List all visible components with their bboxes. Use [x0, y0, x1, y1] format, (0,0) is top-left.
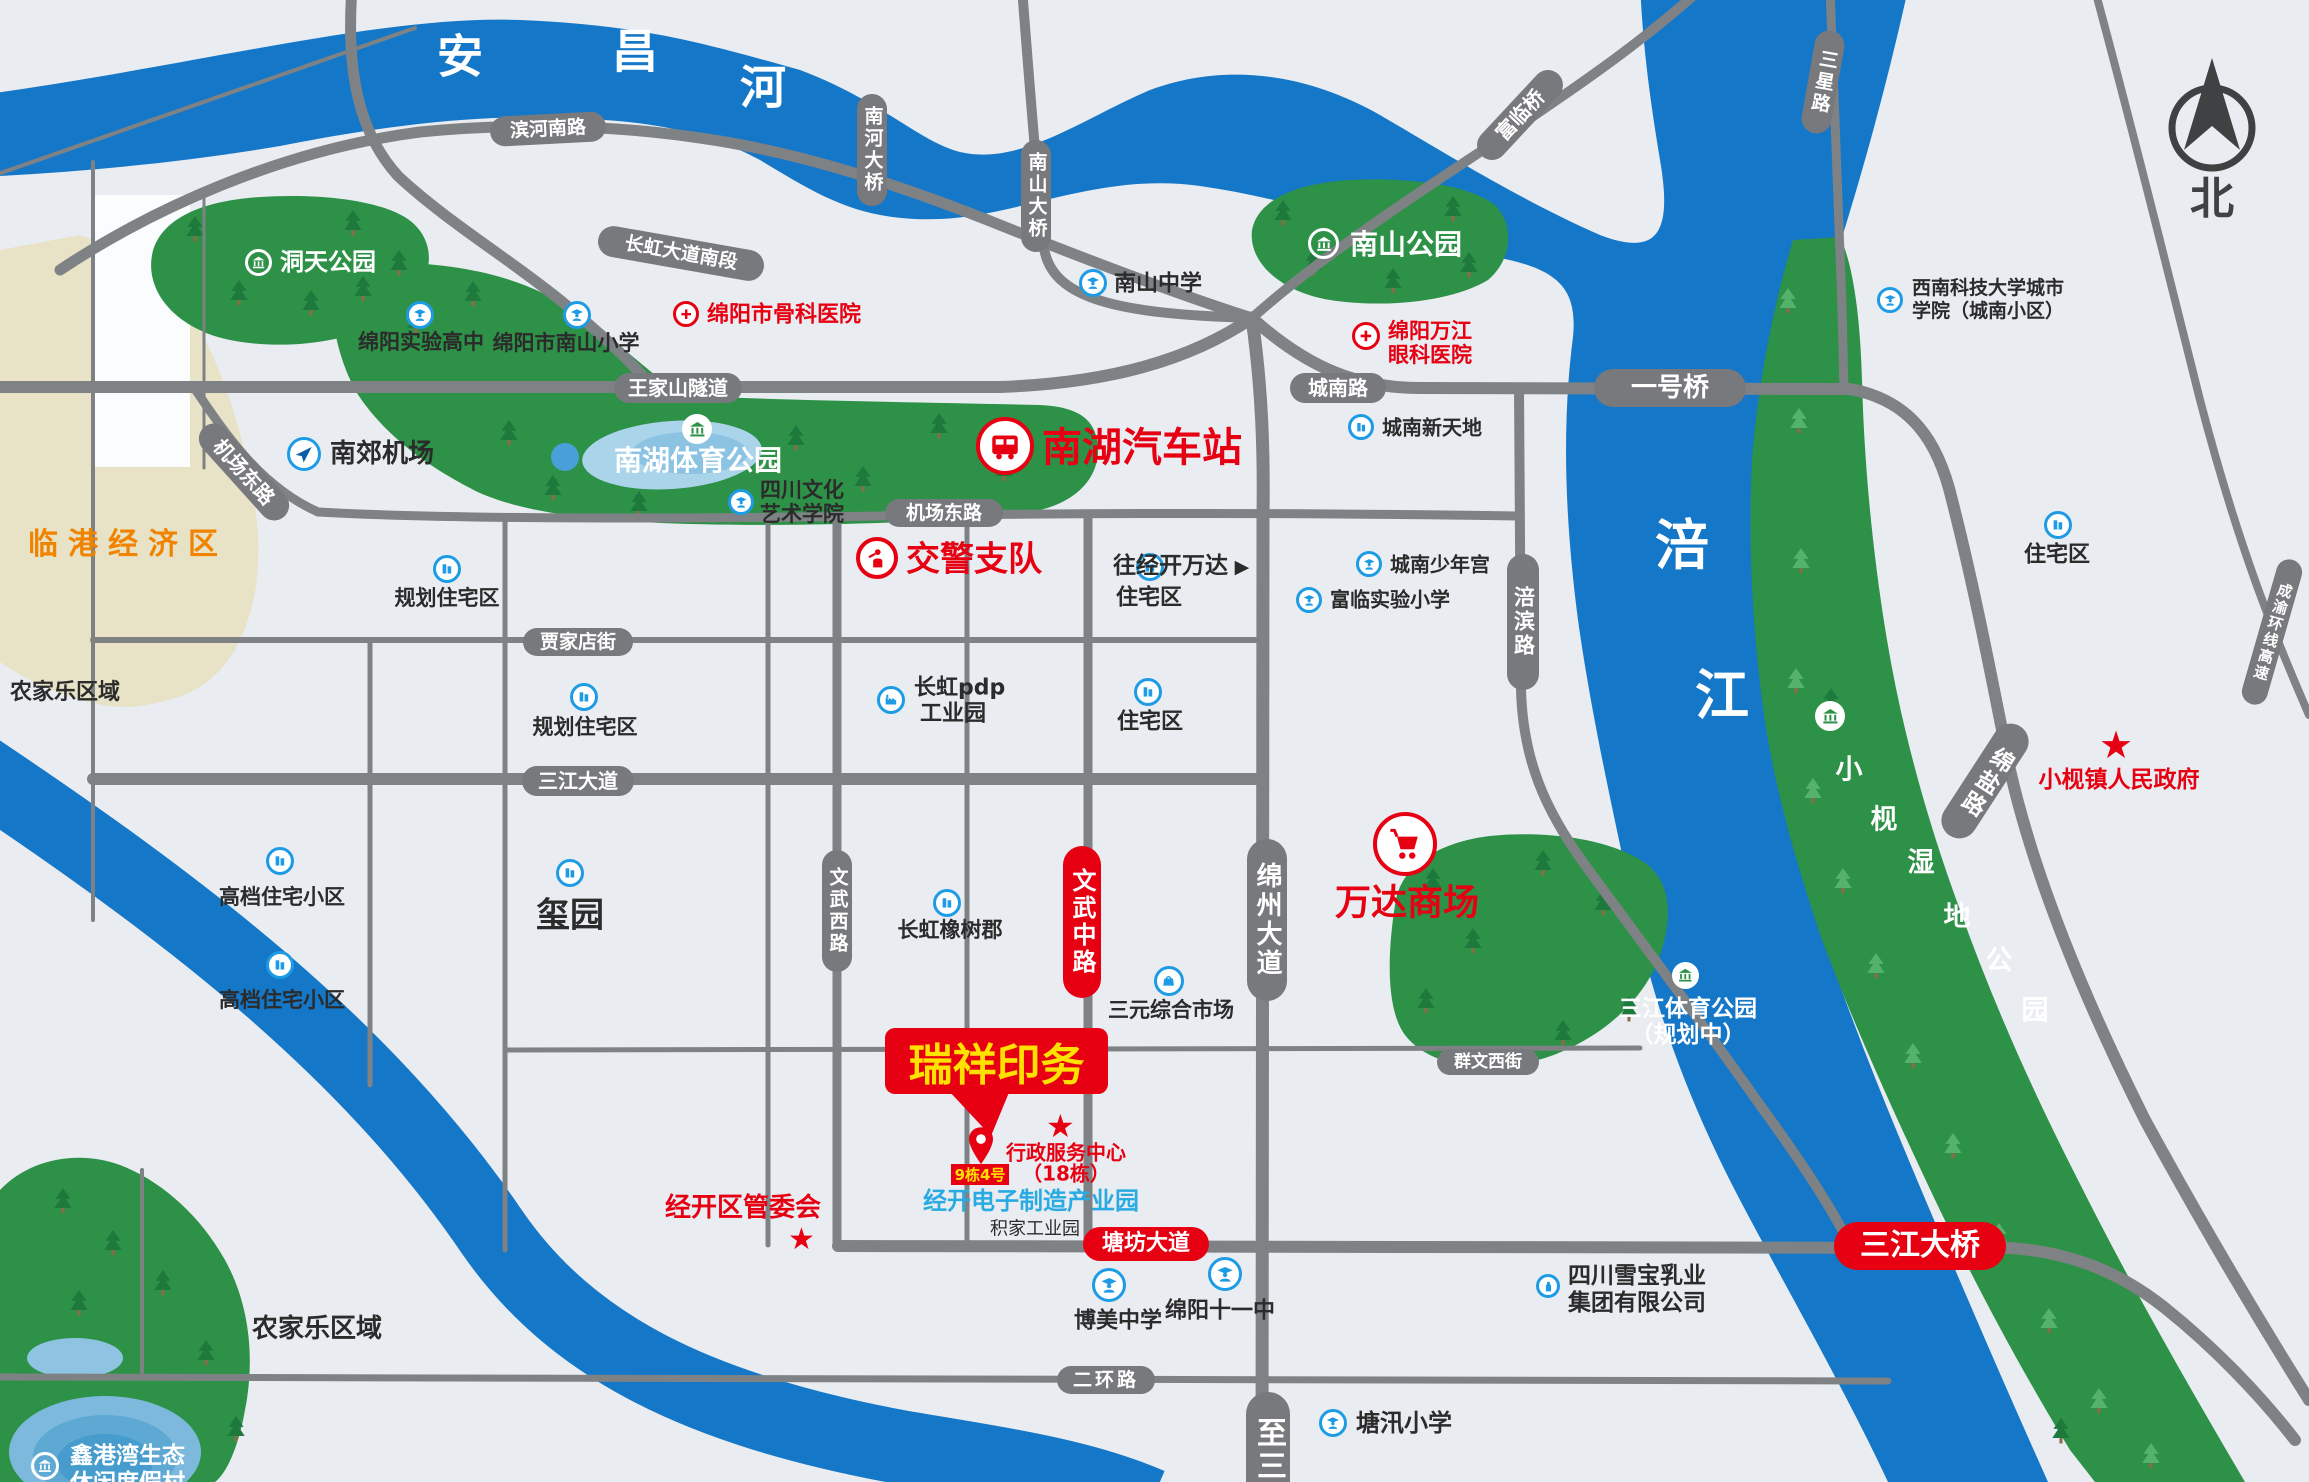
nanjiao-airport-label: 南郊机场 — [330, 440, 434, 470]
tangxun-xiaoxue-icon — [1319, 1409, 1347, 1437]
gaodang-xiaoqu-1-icon — [266, 847, 294, 875]
anchang-river-char-3: 河 — [740, 62, 786, 115]
guihua-zhuzhai-1-label: 规划住宅区 — [395, 586, 500, 610]
gaodang-xiaoqu-1-label: 高档住宅小区 — [219, 885, 345, 909]
xiaojian-wetland-park-icon — [1815, 701, 1845, 731]
shiyan-gaozhong-label: 绵阳实验高中 — [358, 330, 484, 354]
chengnan-shaoniangong-label: 城南少年宫 — [1390, 554, 1490, 577]
zhuzhaiqu-3-icon — [2044, 511, 2072, 539]
xuebao-label-1: 四川雪宝乳业 — [1568, 1263, 1706, 1289]
road-bridge-no1: 一号桥 — [1594, 369, 1746, 407]
xingangwan-pond — [27, 1338, 123, 1378]
mianyang-11-label: 绵阳十一中 — [1165, 1298, 1275, 1323]
sanjiang-sports-park-label-1: 三江体育公园 — [1619, 996, 1757, 1022]
guke-yiyuan-label: 绵阳市骨科医院 — [707, 302, 861, 327]
arrow-right-icon: ▶ — [1228, 556, 1249, 578]
nanshan-xiaoxue-label: 绵阳市南山小学 — [493, 331, 640, 355]
road-fubin: 涪滨路 — [1507, 554, 1539, 690]
xiaojian-wetland-char-5: 公 — [1986, 945, 2013, 976]
road-qunwen-west: 群文西街 — [1437, 1049, 1539, 1075]
bomei-zhongxue-icon — [1092, 1268, 1126, 1302]
mianyang-11-icon — [1208, 1257, 1242, 1291]
gaodang-xiaoqu-2-label: 高档住宅小区 — [219, 988, 345, 1012]
xiyuan-icon — [556, 859, 584, 887]
shiyan-gaozhong-icon — [406, 301, 434, 329]
nongjiale-zone-label-left: 农家乐区域 — [10, 680, 120, 705]
anchang-river-char-1: 安 — [437, 31, 483, 84]
chengnan-shaoniangong-icon — [1356, 551, 1382, 577]
nanhu-bus-station-label: 南湖汽车站 — [1042, 425, 1242, 471]
jiaojing-label: 交警支队 — [906, 540, 1042, 579]
fulin-xiaoxue-label: 富临实验小学 — [1330, 589, 1450, 612]
wanjiang-yanke-label-2: 眼科医院 — [1388, 343, 1472, 367]
fulin-xiaoxue-icon — [1296, 587, 1322, 613]
lingang-zone-label: 临港经济区 — [28, 528, 228, 563]
nanjiao-airport-icon — [287, 437, 321, 471]
xingangwan-label-1: 鑫港湾生态 — [70, 1443, 185, 1469]
compass-icon — [2172, 58, 2252, 168]
xiaojian-wetland-char-3: 湿 — [1908, 847, 1935, 878]
sanyuan-market-icon — [1154, 966, 1184, 996]
nanshan-park-icon — [1308, 228, 1339, 259]
nanhu-sports-park-label: 南湖体育公园 — [614, 445, 782, 477]
road-nanshan-bridge: 南山大桥 — [1021, 140, 1051, 252]
xiaojian-gov-star-icon: ★ — [2099, 726, 2133, 764]
nanhu-sports-park-icon — [682, 414, 712, 444]
address-tag: 9栋4号 — [951, 1164, 1009, 1185]
sichuan-culture-label-2: 艺术学院 — [760, 502, 844, 526]
nongjiale-zone-label-bottom: 农家乐区域 — [252, 1315, 382, 1345]
xingangwan-label-2: 休闲度假村 — [70, 1470, 185, 1482]
nanshan-zhongxue-label: 南山中学 — [1114, 271, 1202, 296]
road-wangjiashan-tunnel: 王家山隧道 — [614, 373, 742, 403]
industry-park-label: 经开电子制造产业园 — [923, 1188, 1139, 1216]
nanshan-xiaoxue-icon — [563, 301, 591, 329]
address-tag-label: 9栋4号 — [955, 1164, 1006, 1185]
sanyuan-market-label: 三元综合市场 — [1108, 998, 1234, 1022]
road-to-santai: 至三 — [1246, 1392, 1290, 1482]
sanjiang-sports-park-icon — [1672, 962, 1699, 989]
xiaojian-wetland-char-2: 枧 — [1871, 804, 1898, 835]
management-committee-label: 经开区管委会 — [665, 1194, 821, 1224]
guihua-zhuzhai-2-label: 规划住宅区 — [533, 715, 638, 739]
road-wenwu-middle: 文武中路 — [1063, 846, 1101, 998]
road-binhe-south: 滨河南路 — [489, 111, 606, 147]
xiaojian-wetland-char-4: 地 — [1944, 901, 1971, 932]
chengnan-xintiandi-icon — [1348, 414, 1374, 440]
swust-icon — [1877, 287, 1903, 313]
xiaojian-gov-label: 小枧镇人民政府 — [2039, 767, 2200, 793]
small-pond — [551, 443, 579, 471]
location-pin-icon — [965, 1125, 997, 1167]
wanjiang-yanke-icon — [1352, 322, 1380, 350]
swust-label-1: 西南科技大学城市 — [1912, 278, 2064, 300]
guihua-zhuzhai-1-icon — [433, 555, 461, 583]
guihua-zhuzhai-2-icon — [570, 683, 598, 711]
anchang-river-char-2: 昌 — [612, 26, 658, 79]
gaodang-xiaoqu-2-icon — [266, 951, 294, 979]
xiyuan-label: 玺园 — [536, 896, 604, 935]
jijia-park-label: 积家工业园 — [990, 1220, 1080, 1241]
admin-center-star-icon: ★ — [1046, 1110, 1075, 1142]
zhuzhaiqu-2-icon — [1134, 678, 1162, 706]
bomei-zhongxue-label: 博美中学 — [1074, 1308, 1162, 1333]
changhong-pdp-label-1: 长虹pdp — [914, 675, 1005, 700]
sichuan-culture-icon — [728, 489, 754, 515]
road-jichang-east: 机场东路 — [885, 499, 1003, 527]
fujiang-river-char-1: 涪 — [1655, 515, 1709, 577]
ruixiang-callout-label: 瑞祥印务 — [909, 1029, 1085, 1093]
location-map: 安 昌 河 涪 江 滨河南路 长虹大道南段 王家山隧道 城南路 机场东路 机场东… — [0, 0, 2309, 1482]
nanshan-park-label: 南山公园 — [1350, 229, 1462, 261]
tangxun-xiaoxue-label: 塘汛小学 — [1356, 1410, 1452, 1438]
jiaojing-icon — [856, 537, 898, 579]
admin-center-label-2: （18栋） — [1022, 1163, 1110, 1186]
road-wenwu-west: 文武西路 — [822, 850, 852, 972]
zhuzhaiqu-3-label: 住宅区 — [2024, 542, 2090, 567]
ruixiang-callout: 瑞祥印务 — [885, 1028, 1108, 1094]
dongtian-park-icon — [245, 249, 272, 276]
swust-label-2: 学院（城南小区） — [1912, 301, 2064, 323]
guke-yiyuan-icon — [673, 301, 699, 327]
xiaojian-wetland-char-6: 园 — [2022, 995, 2049, 1026]
road-erhuan: 二环路 — [1057, 1366, 1155, 1394]
road-sanjiang-avenue: 三江大道 — [522, 766, 634, 796]
chengnan-xintiandi-label: 城南新天地 — [1382, 417, 1482, 440]
xuebao-label-2: 集团有限公司 — [1568, 1290, 1706, 1316]
road-sanjiang-bridge: 三江大桥 — [1834, 1222, 2006, 1270]
changhong-pdp-label-2: 工业园 — [920, 701, 986, 726]
zhuzhaiqu-1-label: 住宅区 — [1116, 585, 1182, 610]
wanjiang-yanke-label-1: 绵阳万江 — [1388, 319, 1472, 343]
compass-north-label: 北 — [2190, 175, 2234, 226]
sanjiang-sports-park-shape — [1390, 834, 1668, 1067]
xuebao-icon — [1536, 1274, 1560, 1298]
zhuzhaiqu-2-label: 住宅区 — [1117, 709, 1183, 734]
changhong-pdp-icon — [877, 686, 905, 714]
xingangwan-park-icon — [31, 1452, 59, 1480]
road-jiajiadian: 贾家店街 — [523, 628, 633, 656]
road-nanhe-bridge: 南河大桥 — [857, 94, 887, 206]
management-committee-star-icon: ★ — [788, 1225, 815, 1255]
road-mianzhou-avenue: 绵州大道 — [1247, 839, 1287, 1001]
wanda-mall-icon — [1373, 812, 1437, 876]
road-tangfang-avenue: 塘坊大道 — [1083, 1227, 1209, 1261]
sichuan-culture-label-1: 四川文化 — [760, 478, 844, 502]
changhong-oak-icon — [933, 889, 961, 917]
sanjiang-sports-park-label-2: （规划中） — [1631, 1022, 1746, 1048]
changhong-oak-label: 长虹橡树郡 — [898, 918, 1003, 942]
dongtian-park-label: 洞天公园 — [280, 249, 376, 277]
nanhu-bus-station-icon — [976, 417, 1034, 475]
wang-jingkai-wanda-label: 往经开万达 ▶ — [1113, 553, 1249, 579]
wanda-mall-label: 万达商场 — [1335, 882, 1479, 923]
fujiang-river-char-2: 江 — [1695, 665, 1749, 727]
xiaojian-wetland-char-1: 小 — [1836, 754, 1863, 785]
road-chengnan: 城南路 — [1290, 373, 1386, 403]
nanshan-zhongxue-icon — [1079, 269, 1107, 297]
